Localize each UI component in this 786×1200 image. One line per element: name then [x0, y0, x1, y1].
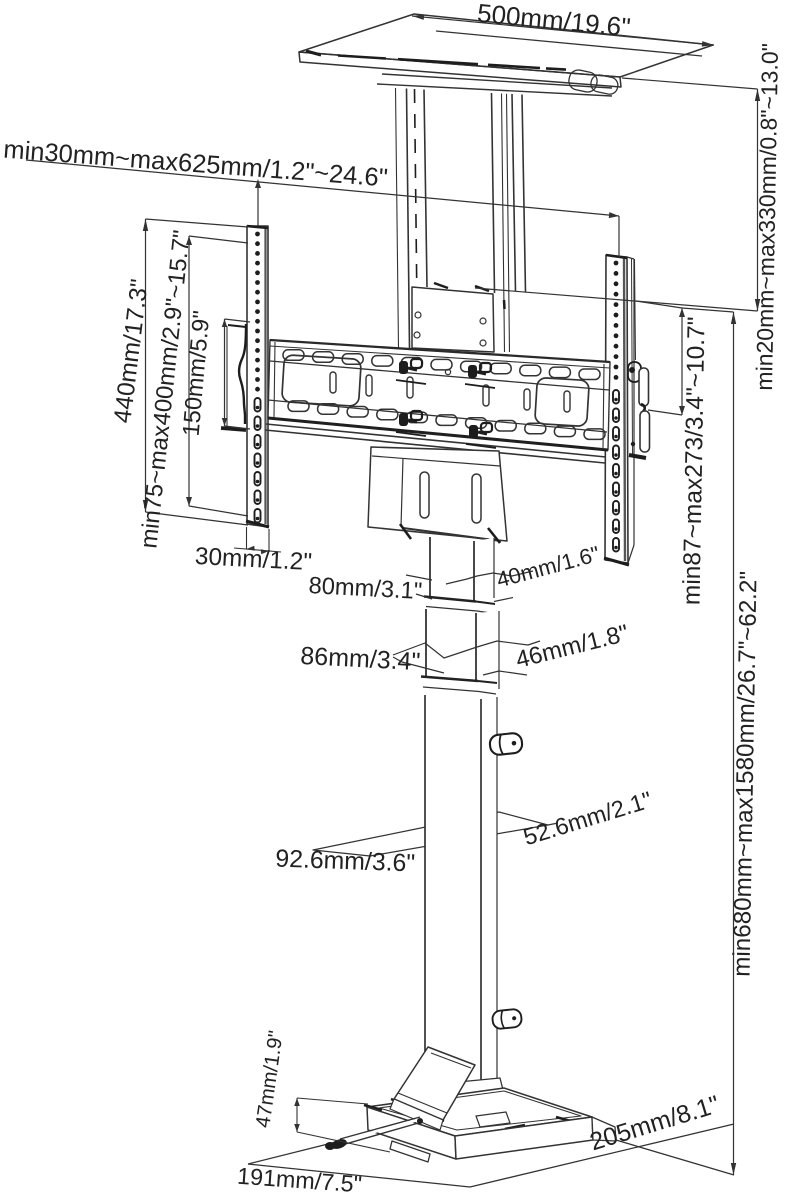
svg-text:min87~max273/3.4"~10.7": min87~max273/3.4"~10.7"	[678, 316, 710, 605]
svg-text:92.6mm/3.6": 92.6mm/3.6"	[275, 846, 416, 878]
